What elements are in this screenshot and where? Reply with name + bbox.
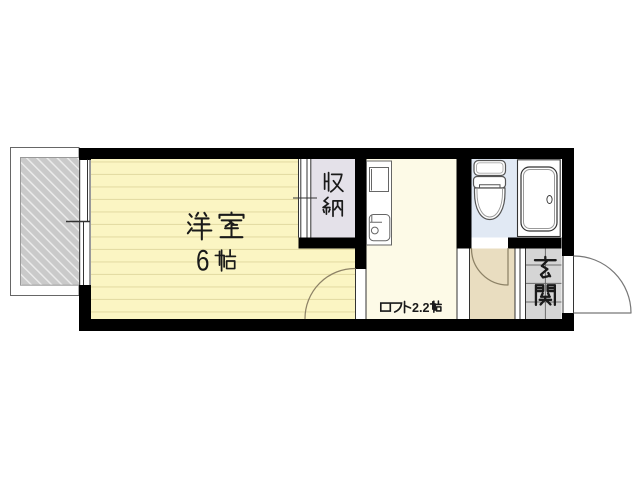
svg-text:2.2: 2.2	[412, 300, 430, 315]
svg-text:6: 6	[196, 245, 210, 278]
